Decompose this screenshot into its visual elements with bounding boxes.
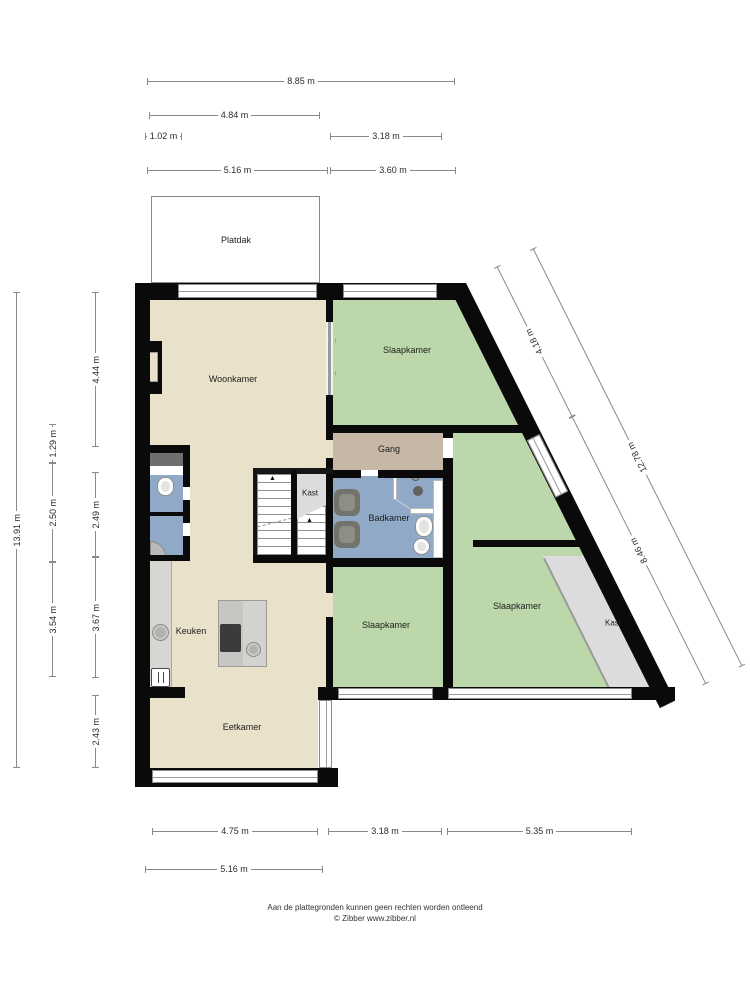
copyright-text: © Zibber www.zibber.nl <box>0 914 750 923</box>
wall-gang-bottom <box>378 470 453 478</box>
wall-post <box>318 687 338 700</box>
bidet-icon <box>413 538 430 555</box>
window-top-2 <box>343 284 437 298</box>
dimension-top: 1.02 m <box>145 132 182 141</box>
dimension-top: 3.18 m <box>330 132 442 141</box>
wall-int <box>326 478 333 558</box>
wc-door-gap <box>183 487 190 500</box>
room-label-keuken: Keuken <box>176 626 207 636</box>
wall-int-right <box>443 425 453 438</box>
room-label-slaapkamer-top: Slaapkamer <box>383 345 431 355</box>
dimension-left: 1.29 m <box>48 424 57 463</box>
dimension-top: 5.16 m <box>147 166 328 175</box>
wall-stairs-divider <box>291 470 297 557</box>
bathroom-cabinet <box>433 480 443 558</box>
wall-post <box>135 768 152 787</box>
island-sink-icon <box>246 642 261 657</box>
dimension-left: 2.50 m <box>48 463 57 562</box>
washbasin-icon-1 <box>334 489 360 516</box>
sink-icon <box>152 624 169 641</box>
stairs-up-arrow-1: ▲ <box>269 475 276 482</box>
door-arrow-down: ↓ <box>334 370 338 377</box>
wall-post <box>318 768 338 787</box>
dimension-bottom: 5.16 m <box>145 865 323 874</box>
stove-icon <box>151 668 170 687</box>
wall-int <box>326 300 333 322</box>
window-top-1 <box>178 284 317 298</box>
stairs-up-arrow-2: ▲ <box>306 517 313 524</box>
wall-gang-top <box>326 425 522 433</box>
room-label-woonkamer: Woonkamer <box>209 374 257 384</box>
toilet-icon-badkamer <box>415 516 433 537</box>
shaft <box>150 453 183 466</box>
disclaimer-text: Aan de plattegronden kunnen geen rechten… <box>0 903 750 912</box>
stairs-left-run <box>257 473 292 557</box>
niche-recess <box>150 352 158 382</box>
dimension-left: 4.44 m <box>91 292 100 447</box>
window-bottom-2 <box>448 688 632 699</box>
wall-post <box>437 283 466 300</box>
shower-drain-icon <box>413 486 423 496</box>
wall-post <box>135 283 178 300</box>
dimension-top: 3.60 m <box>330 166 456 175</box>
wall-int <box>326 617 333 687</box>
wall-stairs-bottom <box>253 555 333 563</box>
sliding-door-line <box>328 322 331 395</box>
wall-partial <box>473 540 590 547</box>
washbasin-icon-2 <box>334 521 360 548</box>
room-label-slaapkamer-left: Slaapkamer <box>362 620 410 630</box>
shaft-door <box>150 466 183 475</box>
wall-post <box>317 283 343 300</box>
room-label-platdak: Platdak <box>221 235 251 245</box>
cooktop-icon <box>220 624 241 652</box>
dimension-left: 3.54 m <box>48 562 57 677</box>
room-label-badkamer: Badkamer <box>368 513 409 523</box>
wall-int <box>326 567 333 593</box>
wall-wc-right <box>183 445 190 561</box>
dimension-left: 2.49 m <box>91 472 100 557</box>
dimension-top-total: 8.85 m <box>147 77 455 86</box>
room-label-kast-right: Kast <box>605 619 621 628</box>
dimension-left: 3.67 m <box>91 557 100 678</box>
wall-post <box>433 687 448 700</box>
window-bottom-1 <box>338 688 433 699</box>
wall-post <box>632 687 675 700</box>
door-arrow-up: ↑ <box>334 338 338 345</box>
window-eetkamer-right <box>319 700 332 768</box>
wall-wc-divider <box>150 512 183 516</box>
wc-door-gap <box>183 523 190 536</box>
dimension-top: 4.84 m <box>149 111 320 120</box>
wall-int-right <box>443 458 453 687</box>
toilet-icon <box>157 477 174 496</box>
room-label-slaapkamer-right: Slaapkamer <box>493 601 541 611</box>
window-eetkamer-bottom <box>152 770 318 783</box>
wall-left <box>135 283 150 787</box>
dimension-bottom: 4.75 m <box>152 827 318 836</box>
wall-int <box>326 395 333 440</box>
room-label-eetkamer: Eetkamer <box>223 722 262 732</box>
wall-keuken-stub <box>135 687 185 698</box>
dimension-left-total: 13.91 m <box>12 292 21 768</box>
dimension-left: 2.43 m <box>91 695 100 768</box>
wall-wc-bottom <box>145 555 190 561</box>
floorplan-canvas: Platdak ▲ ▲ <box>0 0 750 1000</box>
wall-stairs-left <box>253 468 257 563</box>
wall-badkamer-bottom <box>326 558 453 567</box>
dimension-bottom: 3.18 m <box>328 827 442 836</box>
dimension-bottom: 5.35 m <box>447 827 632 836</box>
room-label-gang: Gang <box>378 444 400 454</box>
room-label-kast-stairs: Kast <box>302 489 318 498</box>
